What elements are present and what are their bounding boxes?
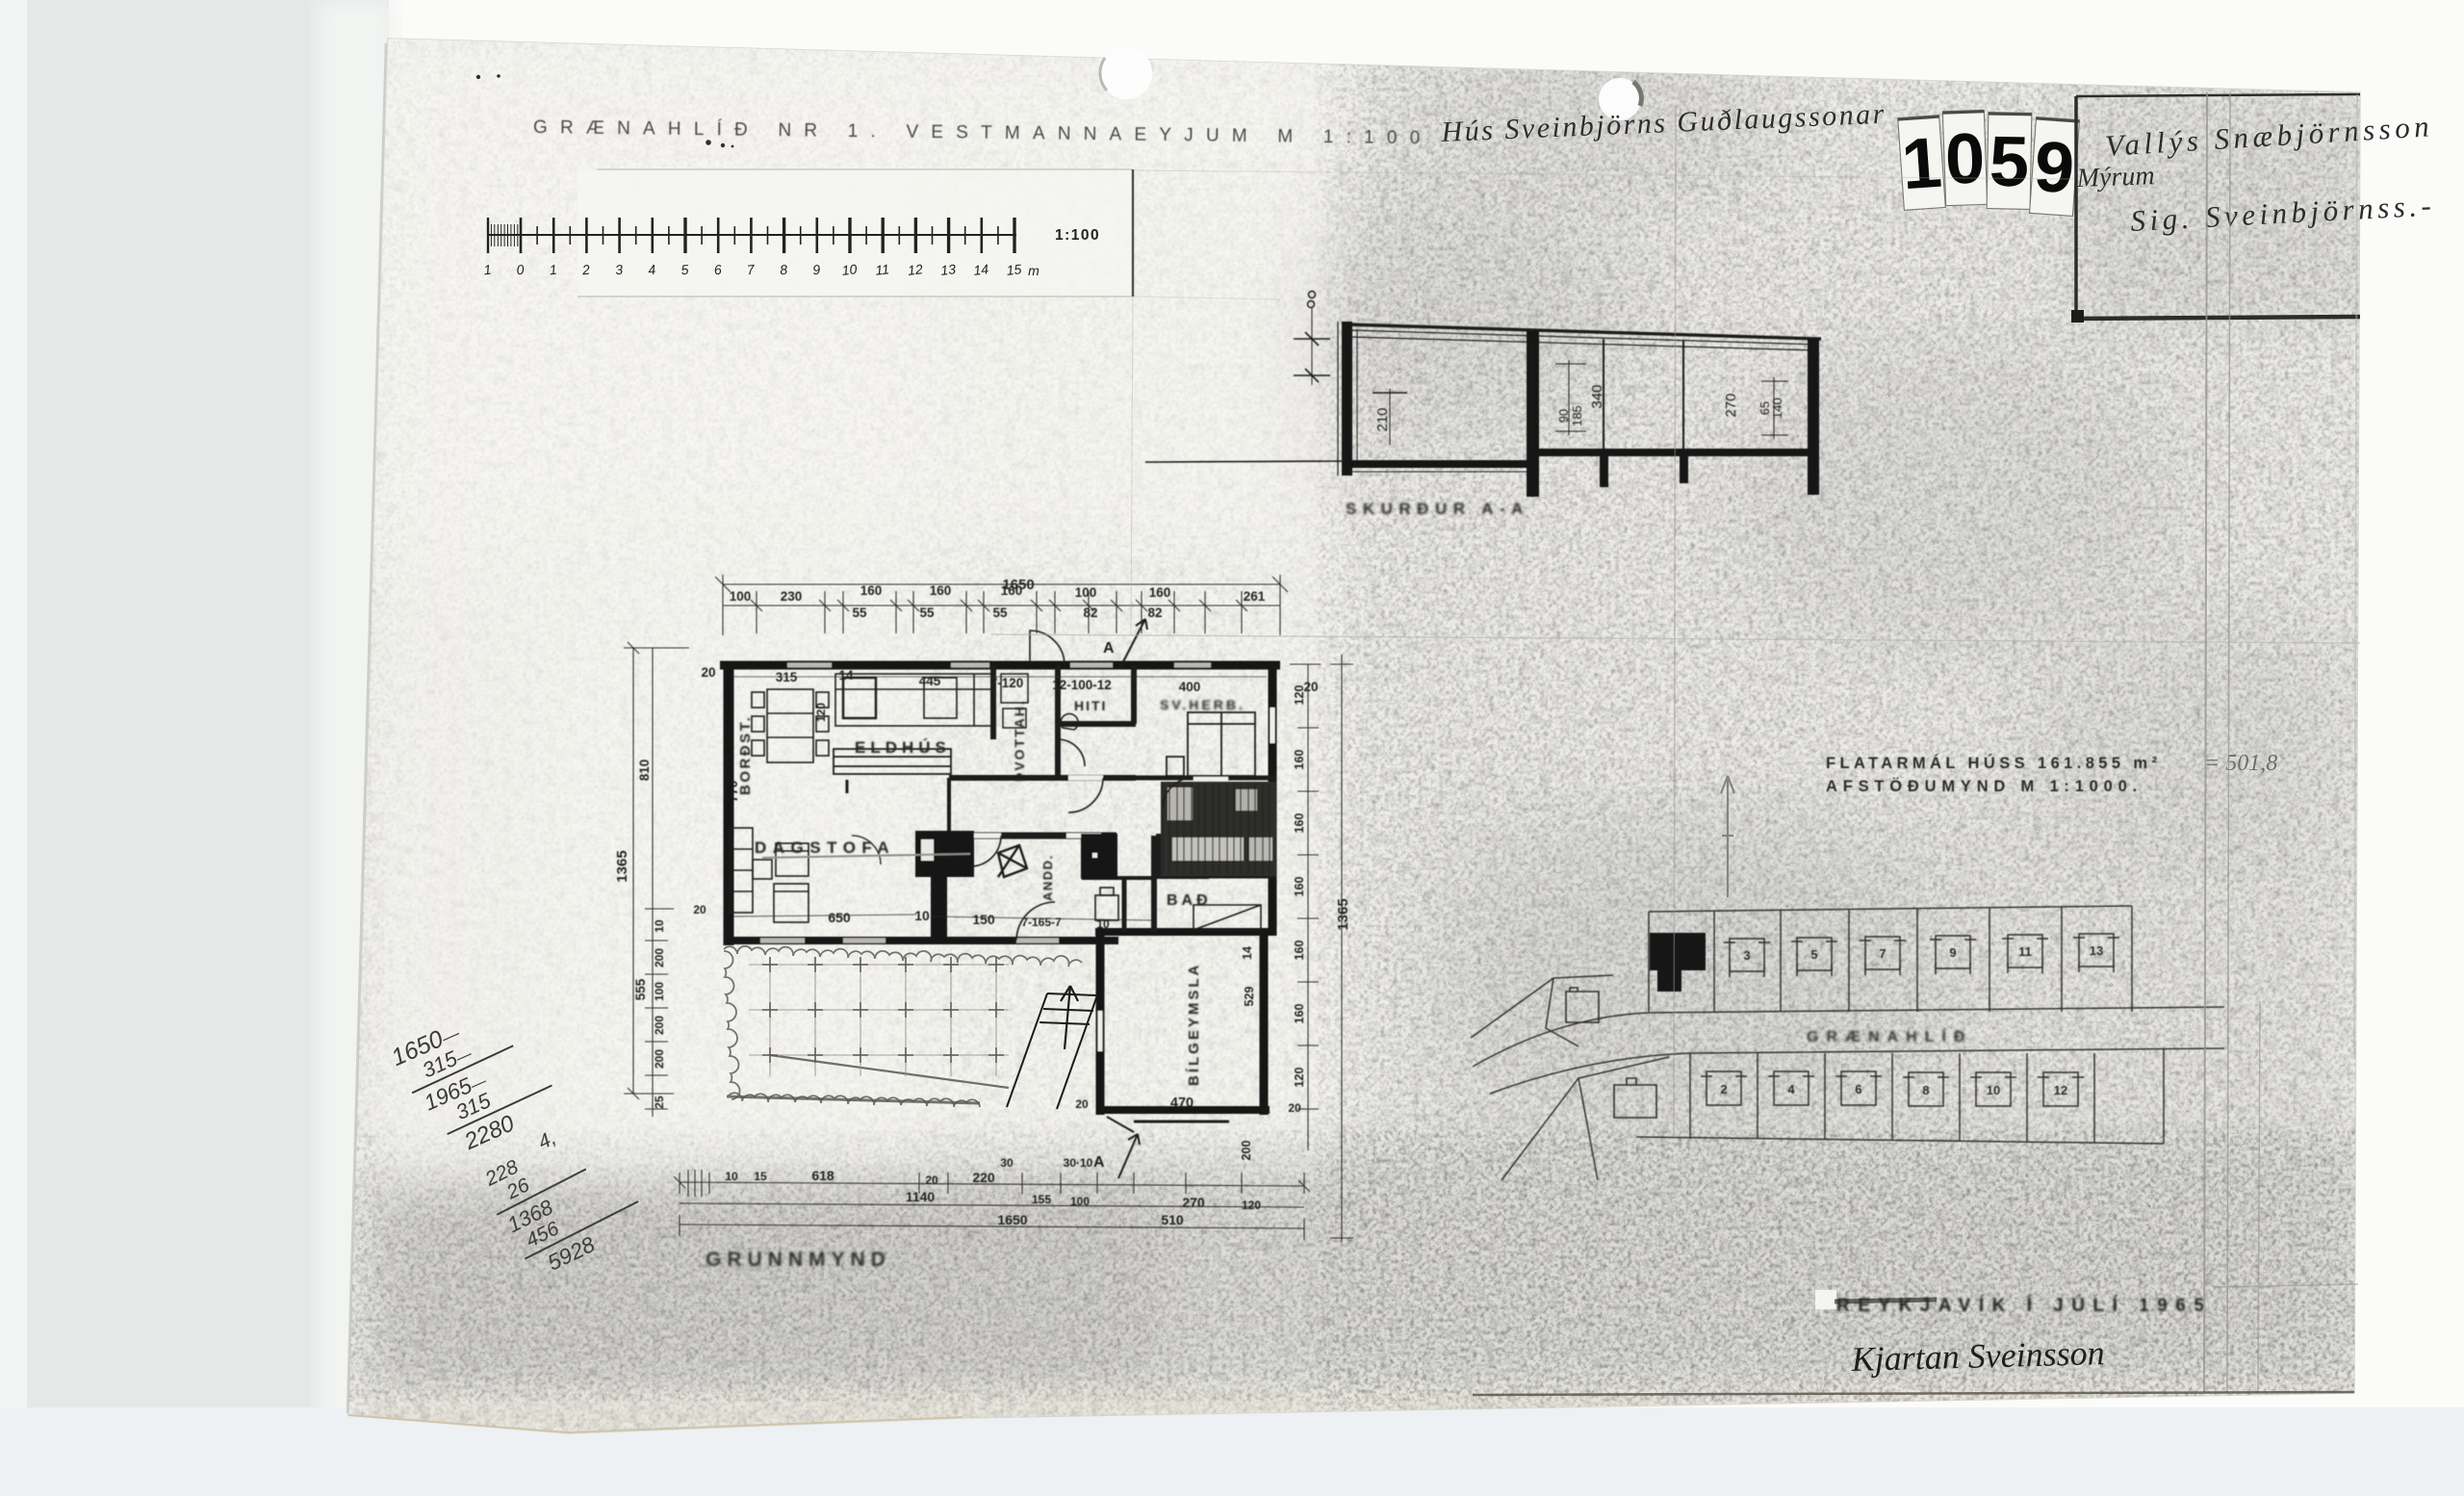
svg-text:ÞVOTTAH.: ÞVOTTAH. (1012, 699, 1027, 782)
svg-text:REYKJAVÍK Í JÚLÍ 1965: REYKJAVÍK Í JÚLÍ 1965 (1836, 1295, 2212, 1316)
svg-text:220: 220 (972, 1170, 995, 1185)
svg-text:55: 55 (992, 606, 1008, 620)
svg-text:14: 14 (838, 668, 854, 683)
svg-text:0: 0 (1944, 117, 1987, 198)
svg-text:12: 12 (2054, 1083, 2067, 1097)
svg-text:10: 10 (841, 261, 858, 278)
svg-text:13: 13 (2090, 943, 2103, 958)
svg-text:20: 20 (1303, 680, 1318, 694)
svg-text:82: 82 (1147, 606, 1162, 620)
svg-text:SKURÐUR A-A: SKURÐUR A-A (1346, 500, 1529, 518)
svg-text:20: 20 (693, 903, 706, 916)
svg-text:1:100: 1:100 (1055, 227, 1100, 244)
svg-text:1: 1 (1899, 122, 1944, 205)
svg-text:445: 445 (919, 674, 941, 688)
svg-text:30·10: 30·10 (1064, 1156, 1093, 1170)
svg-text:55: 55 (852, 606, 867, 620)
svg-text:8: 8 (1922, 1083, 1929, 1097)
svg-text:SV.HERB.: SV.HERB. (1160, 697, 1245, 712)
svg-text:ELDHÚS: ELDHÚS (855, 738, 951, 757)
svg-text:FLATARMÁL HÚSS 161.855 m²: FLATARMÁL HÚSS 161.855 m² (1826, 754, 2161, 772)
svg-text:270: 270 (1182, 1195, 1205, 1210)
svg-text:1140: 1140 (906, 1189, 936, 1204)
svg-text:20: 20 (1288, 1101, 1301, 1115)
svg-text:6: 6 (1855, 1082, 1861, 1096)
svg-text:7: 7 (1879, 946, 1886, 961)
svg-text:160: 160 (1293, 1004, 1306, 1024)
svg-text:120: 120 (814, 703, 828, 722)
svg-text:GRÆNAHLÍÐ: GRÆNAHLÍÐ (1807, 1027, 1972, 1045)
svg-text:1650: 1650 (997, 1212, 1027, 1227)
svg-text:470: 470 (1170, 1096, 1193, 1111)
svg-text:1: 1 (483, 262, 492, 278)
svg-text:9: 9 (1949, 945, 1956, 960)
svg-text:200: 200 (653, 1049, 666, 1069)
svg-text:200: 200 (653, 1016, 666, 1035)
svg-text:160: 160 (1149, 585, 1171, 600)
svg-text:1365: 1365 (1335, 898, 1351, 930)
svg-text:ANDD.: ANDD. (1040, 854, 1055, 901)
svg-text:10: 10 (914, 908, 930, 923)
svg-text:AFSTÖÐUMYND M 1:1000.: AFSTÖÐUMYND M 1:1000. (1826, 777, 2143, 795)
svg-text:15: 15 (754, 1170, 767, 1183)
svg-text:230: 230 (781, 589, 803, 604)
svg-text:5: 5 (1810, 947, 1817, 962)
svg-text:10: 10 (725, 1170, 738, 1183)
svg-text:120: 120 (1242, 1199, 1261, 1212)
svg-text:150: 150 (972, 912, 995, 927)
svg-text:340: 340 (1589, 384, 1605, 408)
svg-text:100: 100 (730, 589, 752, 604)
svg-text:HITI: HITI (1074, 698, 1107, 713)
svg-text:10: 10 (1987, 1083, 2000, 1097)
svg-text:160: 160 (1293, 877, 1306, 897)
svg-text:15: 15 (1006, 261, 1022, 278)
svg-text:2: 2 (1720, 1082, 1727, 1096)
svg-text:140: 140 (1770, 398, 1784, 419)
svg-text:400: 400 (1179, 680, 1201, 694)
svg-text:200: 200 (653, 948, 666, 967)
svg-text:13: 13 (939, 261, 956, 278)
svg-text:7-120: 7-120 (990, 676, 1024, 690)
svg-text:529: 529 (1243, 987, 1256, 1007)
svg-text:A: A (1103, 640, 1115, 657)
svg-text:82: 82 (1083, 606, 1097, 620)
svg-text:20: 20 (701, 665, 715, 680)
svg-text:3: 3 (1743, 948, 1750, 963)
svg-text:25: 25 (653, 1096, 666, 1109)
svg-text:5: 5 (1989, 121, 2030, 202)
svg-text:12: 12 (907, 261, 923, 278)
svg-text:160: 160 (860, 583, 883, 598)
svg-text:DAGSTOFA: DAGSTOFA (755, 838, 895, 857)
svg-text:1: 1 (549, 262, 557, 278)
svg-text:Kjartan Sveinsson: Kjartan Sveinsson (1850, 1333, 2105, 1379)
svg-text:1365: 1365 (614, 850, 630, 882)
svg-text:20: 20 (925, 1174, 938, 1187)
svg-text:11: 11 (875, 261, 890, 277)
svg-text:160: 160 (1293, 941, 1306, 961)
svg-text:650: 650 (828, 910, 851, 925)
svg-text:BÍLGEYMSLA: BÍLGEYMSLA (1186, 963, 1202, 1086)
svg-text:14: 14 (1241, 946, 1254, 960)
svg-text:155: 155 (1032, 1193, 1051, 1206)
svg-text:55: 55 (919, 606, 935, 620)
svg-text:30: 30 (1000, 1156, 1014, 1170)
svg-text:9: 9 (2032, 126, 2077, 209)
svg-text:7-165-7: 7-165-7 (1021, 916, 1062, 929)
svg-text:Mýrum: Mýrum (2075, 161, 2155, 193)
svg-text:210: 210 (1374, 407, 1391, 431)
svg-text:GRUNNMYND: GRUNNMYND (706, 1249, 891, 1271)
svg-text:120: 120 (1293, 1068, 1306, 1088)
svg-text:100: 100 (1075, 585, 1097, 600)
svg-text:100: 100 (653, 982, 666, 1001)
svg-text:11: 11 (2018, 944, 2032, 959)
svg-text:A: A (1093, 1154, 1105, 1171)
svg-text:12-100-12: 12-100-12 (1052, 678, 1112, 692)
svg-text:4: 4 (1787, 1082, 1795, 1096)
svg-text:618: 618 (811, 1168, 834, 1183)
svg-text:261: 261 (1244, 589, 1266, 604)
svg-text:160: 160 (1001, 583, 1023, 598)
svg-text:100: 100 (1070, 1195, 1090, 1208)
svg-text:20: 20 (1075, 1097, 1089, 1111)
svg-text:810: 810 (637, 760, 652, 782)
svg-text:BORÐST.: BORÐST. (737, 715, 754, 795)
svg-text:BAÐ: BAÐ (1167, 892, 1212, 909)
svg-text:14: 14 (973, 261, 989, 278)
svg-text:= 501,8: = 501,8 (2204, 751, 2277, 776)
svg-text:185: 185 (1570, 405, 1584, 426)
svg-text:200: 200 (1240, 1141, 1253, 1161)
svg-text:270: 270 (1723, 393, 1739, 417)
svg-text:10: 10 (653, 919, 666, 933)
svg-text:555: 555 (633, 978, 648, 1000)
svg-text:160: 160 (930, 583, 952, 598)
svg-text:510: 510 (1161, 1212, 1184, 1227)
svg-text:m: m (1028, 263, 1039, 278)
svg-text:160: 160 (1293, 750, 1306, 770)
svg-text:160: 160 (1293, 813, 1306, 834)
